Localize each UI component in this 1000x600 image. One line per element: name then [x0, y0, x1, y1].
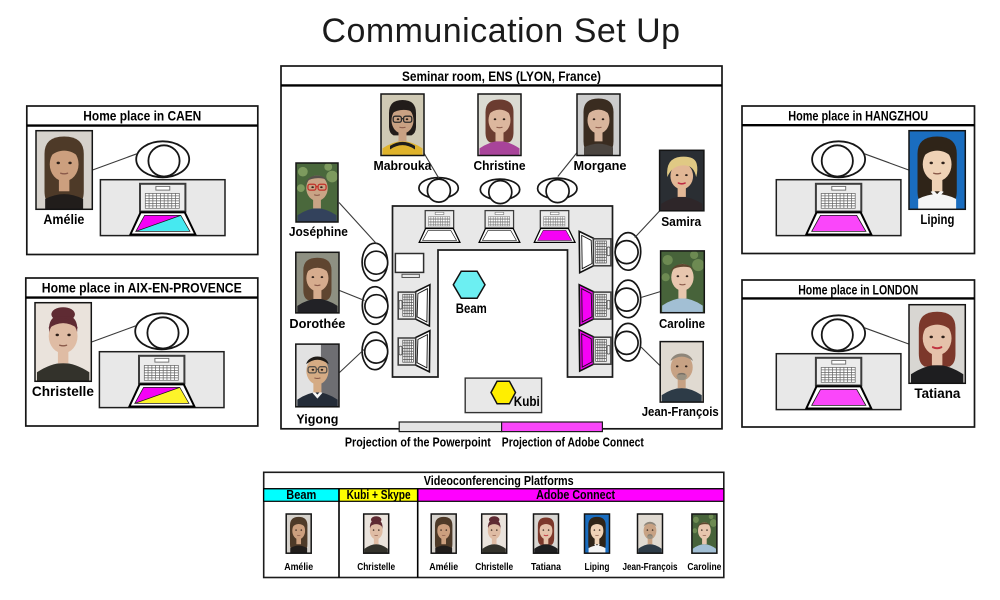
- svg-text:Seminar room, ENS (LYON, Franc: Seminar room, ENS (LYON, France): [402, 68, 601, 84]
- svg-text:Home place in HANGZHOU: Home place in HANGZHOU: [788, 108, 928, 124]
- svg-text:Communication Set Up: Communication Set Up: [322, 12, 681, 50]
- svg-text:Videoconferencing Platforms: Videoconferencing Platforms: [424, 474, 574, 488]
- svg-text:Kubi: Kubi: [514, 394, 540, 409]
- svg-text:Home place in LONDON: Home place in LONDON: [798, 282, 918, 298]
- svg-text:Jean-François: Jean-François: [642, 404, 719, 419]
- svg-text:Beam: Beam: [456, 301, 487, 316]
- svg-text:Amélie: Amélie: [43, 212, 84, 227]
- svg-text:Beam: Beam: [286, 488, 316, 502]
- svg-text:Projection of Adobe Connect: Projection of Adobe Connect: [502, 436, 645, 450]
- svg-text:Christelle: Christelle: [475, 561, 513, 573]
- svg-text:Caroline: Caroline: [659, 316, 705, 331]
- svg-text:Samira: Samira: [661, 214, 702, 229]
- svg-text:Tatiana: Tatiana: [531, 561, 561, 573]
- svg-text:Christelle: Christelle: [357, 561, 395, 573]
- svg-text:Mabrouka: Mabrouka: [374, 158, 433, 173]
- svg-text:Projection of the Powerpoint: Projection of the Powerpoint: [345, 436, 492, 450]
- svg-text:Christine: Christine: [474, 158, 526, 173]
- svg-text:Morgane: Morgane: [574, 158, 627, 173]
- svg-text:Amélie: Amélie: [284, 561, 313, 573]
- svg-text:Home place in AIX-EN-PROVENCE: Home place in AIX-EN-PROVENCE: [42, 280, 242, 296]
- svg-text:Amélie: Amélie: [429, 561, 458, 573]
- svg-text:Caroline: Caroline: [687, 561, 721, 573]
- svg-text:Jean-François: Jean-François: [623, 561, 678, 573]
- svg-text:Liping: Liping: [920, 212, 954, 227]
- svg-text:Dorothée: Dorothée: [289, 316, 345, 331]
- svg-text:Kubi + Skype: Kubi + Skype: [347, 488, 411, 502]
- svg-text:Christelle: Christelle: [32, 384, 94, 399]
- svg-text:Adobe Connect: Adobe Connect: [536, 488, 616, 502]
- svg-text:Liping: Liping: [585, 561, 610, 573]
- svg-text:Yigong: Yigong: [296, 412, 338, 427]
- svg-text:Tatiana: Tatiana: [914, 386, 960, 401]
- svg-text:Home place in CAEN: Home place in CAEN: [83, 108, 201, 124]
- svg-text:Joséphine: Joséphine: [289, 224, 348, 239]
